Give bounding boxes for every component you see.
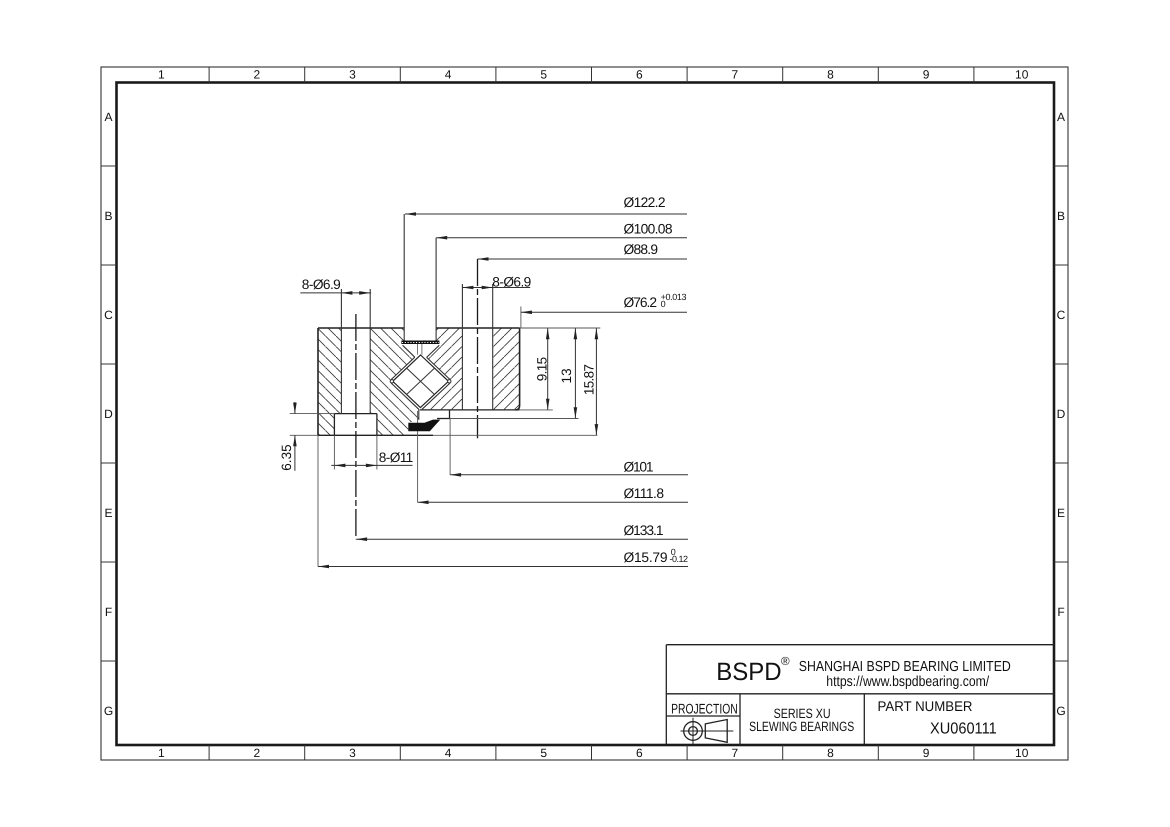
svg-text:10: 10 [1015,68,1029,82]
svg-text:13: 13 [559,368,574,383]
svg-text:E: E [104,506,112,520]
svg-text:Ø76.2: Ø76.2 [624,295,658,310]
svg-text:1: 1 [158,746,165,760]
svg-text:8-Ø6.9: 8-Ø6.9 [492,275,531,290]
svg-text:6: 6 [636,68,643,82]
svg-text:9: 9 [923,746,930,760]
svg-text:3: 3 [349,68,356,82]
svg-text:Ø88.9: Ø88.9 [624,242,659,257]
svg-text:8-Ø11: 8-Ø11 [379,450,414,465]
svg-text:2: 2 [254,746,261,760]
svg-text:5: 5 [540,68,547,82]
svg-text:0: 0 [661,299,666,309]
svg-text:C: C [1057,308,1066,322]
svg-text:8: 8 [827,746,834,760]
svg-text:SLEWING BEARINGS: SLEWING BEARINGS [749,719,854,734]
svg-text:15.87: 15.87 [582,364,597,395]
svg-text:4: 4 [445,746,452,760]
svg-text:BSPD: BSPD [716,658,781,686]
svg-text:Ø133.1: Ø133.1 [624,523,664,538]
svg-text:7: 7 [732,746,739,760]
svg-text:8: 8 [827,68,834,82]
svg-text:D: D [104,407,113,421]
svg-text:Ø111.8: Ø111.8 [624,486,665,501]
svg-text:10: 10 [1015,746,1029,760]
svg-text:G: G [104,704,113,718]
svg-text:SHANGHAI BSPD BEARING LIMITED: SHANGHAI BSPD BEARING LIMITED [799,659,1011,675]
svg-text:C: C [104,308,113,322]
svg-text:3: 3 [349,746,356,760]
svg-text:-0.12: -0.12 [670,554,689,564]
svg-text:9: 9 [923,68,930,82]
svg-text:9.15: 9.15 [535,357,550,382]
svg-text:5: 5 [540,746,547,760]
svg-text:F: F [105,605,112,619]
svg-text:Ø122.2: Ø122.2 [624,195,666,210]
svg-text:PART NUMBER: PART NUMBER [878,698,973,714]
svg-text:B: B [1057,209,1065,223]
svg-text:A: A [104,110,112,124]
svg-text:6.35: 6.35 [279,444,294,471]
svg-text:8-Ø6.9: 8-Ø6.9 [302,277,341,292]
svg-text:D: D [1057,407,1066,421]
svg-text:7: 7 [732,68,739,82]
svg-text:Ø15.79: Ø15.79 [624,550,668,565]
svg-text:F: F [1057,605,1064,619]
svg-text:B: B [104,209,112,223]
svg-text:https://www.bspdbearing.com/: https://www.bspdbearing.com/ [826,674,990,690]
svg-text:PROJECTION: PROJECTION [671,701,738,717]
svg-text:E: E [1057,506,1065,520]
svg-text:Ø100.08: Ø100.08 [624,222,673,237]
svg-text:XU060111: XU060111 [930,721,997,738]
svg-text:A: A [1057,110,1065,124]
svg-text:6: 6 [636,746,643,760]
svg-text:Ø101: Ø101 [624,460,654,475]
svg-text:®: ® [781,655,790,668]
svg-text:1: 1 [158,68,165,82]
svg-text:2: 2 [254,68,261,82]
svg-text:4: 4 [445,68,452,82]
svg-text:G: G [1056,704,1065,718]
